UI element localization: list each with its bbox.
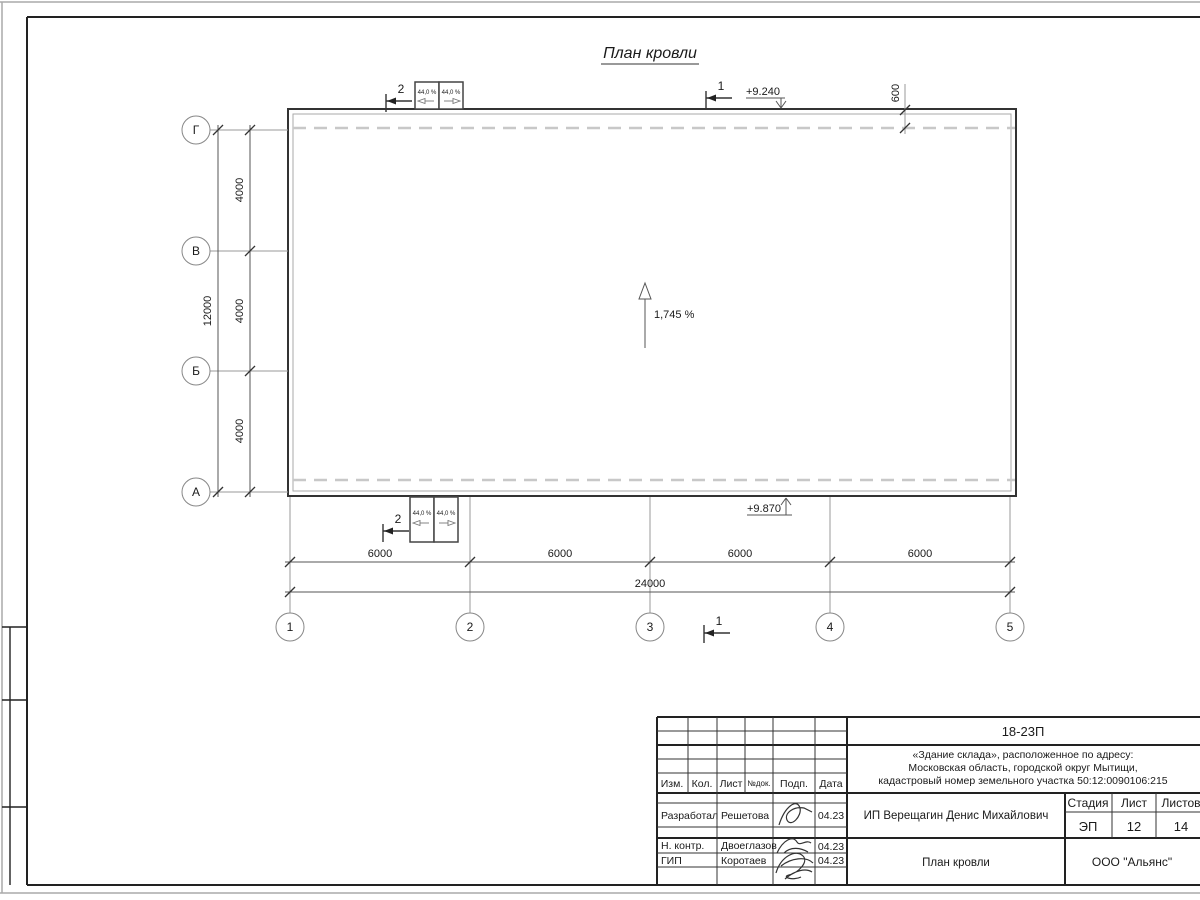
grid-bubbles-bottom: 1 2 3 4 5 xyxy=(276,613,1024,641)
section-mark-2-bottom: 2 xyxy=(383,512,409,542)
tb-col-ndok: №док. xyxy=(747,779,770,788)
tb-role-gip: ГИП xyxy=(661,855,682,867)
dim-6000-1: 6000 xyxy=(368,548,392,560)
grid-axis-4: 4 xyxy=(827,620,834,634)
grid-axis-a: А xyxy=(192,485,200,499)
tb-sheets-label: Листов xyxy=(1162,796,1200,810)
roof-outline xyxy=(288,109,1016,496)
elevation-value: +9.870 xyxy=(747,503,781,515)
dimension-ticks xyxy=(213,105,1015,597)
slope-arrow: 1,745 % xyxy=(639,283,695,348)
vent-slope-label: 44,0 % xyxy=(442,90,461,96)
dim-4000-1: 4000 xyxy=(234,178,246,202)
slope-value: 1,745 % xyxy=(654,309,695,321)
dim-4000-2: 4000 xyxy=(234,299,246,323)
section-label: 2 xyxy=(398,82,405,96)
section-label: 1 xyxy=(718,79,725,93)
section-mark-1-bottom: 1 xyxy=(704,614,730,643)
tb-name-developer: Решетова xyxy=(721,810,769,822)
tb-sheets-value: 14 xyxy=(1174,819,1188,834)
elevation-bottom: +9.870 xyxy=(747,498,792,515)
tb-doc-number: 18-23П xyxy=(1002,724,1045,739)
tb-role-ncontrol: Н. контр. xyxy=(661,840,704,852)
filing-strip xyxy=(2,627,27,885)
roof-vent-bottom: 44,0 % 44,0 % xyxy=(410,497,458,542)
drawing-sheet: План кровли xyxy=(0,0,1200,900)
tb-col-list: Лист xyxy=(720,778,743,790)
roof-plan-drawing: План кровли xyxy=(0,0,1200,900)
tb-object-line1: «Здание склада», расположенное по адресу… xyxy=(913,749,1134,761)
tb-col-podp: Подп. xyxy=(780,778,808,790)
tb-col-izm: Изм. xyxy=(661,778,684,790)
dim-4000-3: 4000 xyxy=(234,419,246,443)
tb-sheet-value: 12 xyxy=(1127,819,1141,834)
tb-client: ИП Верещагин Денис Михайлович xyxy=(864,810,1049,822)
grid-axis-1: 1 xyxy=(287,620,294,634)
grid-axis-3: 3 xyxy=(647,620,654,634)
tb-role-developer: Разработал xyxy=(661,810,718,822)
tb-date: 04.23 xyxy=(818,855,844,867)
wall-dashed-lines xyxy=(293,128,1015,480)
dim-24000: 24000 xyxy=(635,578,666,590)
tb-date: 04.23 xyxy=(818,841,844,853)
tb-name-ncontrol: Двоеглазов xyxy=(721,840,777,852)
grid-axis-v: В xyxy=(192,244,200,258)
dim-600: 600 xyxy=(890,84,902,102)
tb-object-line2: Московская область, городской округ Мыти… xyxy=(908,762,1137,774)
dim-12000: 12000 xyxy=(202,296,214,327)
elevation-top: +9.240 xyxy=(746,86,786,108)
section-mark-1-top: 1 xyxy=(706,79,732,109)
dim-6000-4: 6000 xyxy=(908,548,932,560)
roof-vent-top: 44,0 % 44,0 % xyxy=(415,82,463,109)
tb-company: ООО "Альянс" xyxy=(1092,855,1172,869)
signature-scribbles xyxy=(776,804,813,879)
vent-slope-label: 44,0 % xyxy=(413,511,432,517)
dimension-lines xyxy=(218,125,1015,592)
grid-axis-b: Б xyxy=(192,364,200,378)
dim-6000-2: 6000 xyxy=(548,548,572,560)
vent-slope-label: 44,0 % xyxy=(418,90,437,96)
tb-date: 04.23 xyxy=(818,810,844,822)
tb-drawing-name: План кровли xyxy=(922,857,990,869)
section-mark-2-top: 2 xyxy=(386,82,412,112)
section-label: 2 xyxy=(395,512,402,526)
tb-stage-value: ЭП xyxy=(1079,819,1098,834)
vent-slope-label: 44,0 % xyxy=(437,511,456,517)
tb-col-kol: Кол. xyxy=(692,778,713,790)
dim-6000-3: 6000 xyxy=(728,548,752,560)
title-block: Изм. Кол. Лист №док. Подп. Дата Разработ… xyxy=(657,717,1200,885)
tb-col-data: Дата xyxy=(819,778,842,790)
grid-axis-2: 2 xyxy=(467,620,474,634)
grid-axis-g: Г xyxy=(193,123,200,137)
tb-stage-label: Стадия xyxy=(1068,796,1109,810)
page-title: План кровли xyxy=(603,45,697,62)
tb-sheet-label: Лист xyxy=(1121,796,1148,810)
tb-object-line3: кадастровый номер земельного участка 50:… xyxy=(878,775,1167,787)
grid-lines xyxy=(210,84,1010,613)
elevation-value: +9.240 xyxy=(746,86,780,98)
section-label: 1 xyxy=(716,614,723,628)
dimension-labels: 4000 4000 4000 12000 6000 6000 6000 6000… xyxy=(202,84,932,590)
tb-name-gip: Коротаев xyxy=(721,855,767,867)
grid-axis-5: 5 xyxy=(1007,620,1014,634)
